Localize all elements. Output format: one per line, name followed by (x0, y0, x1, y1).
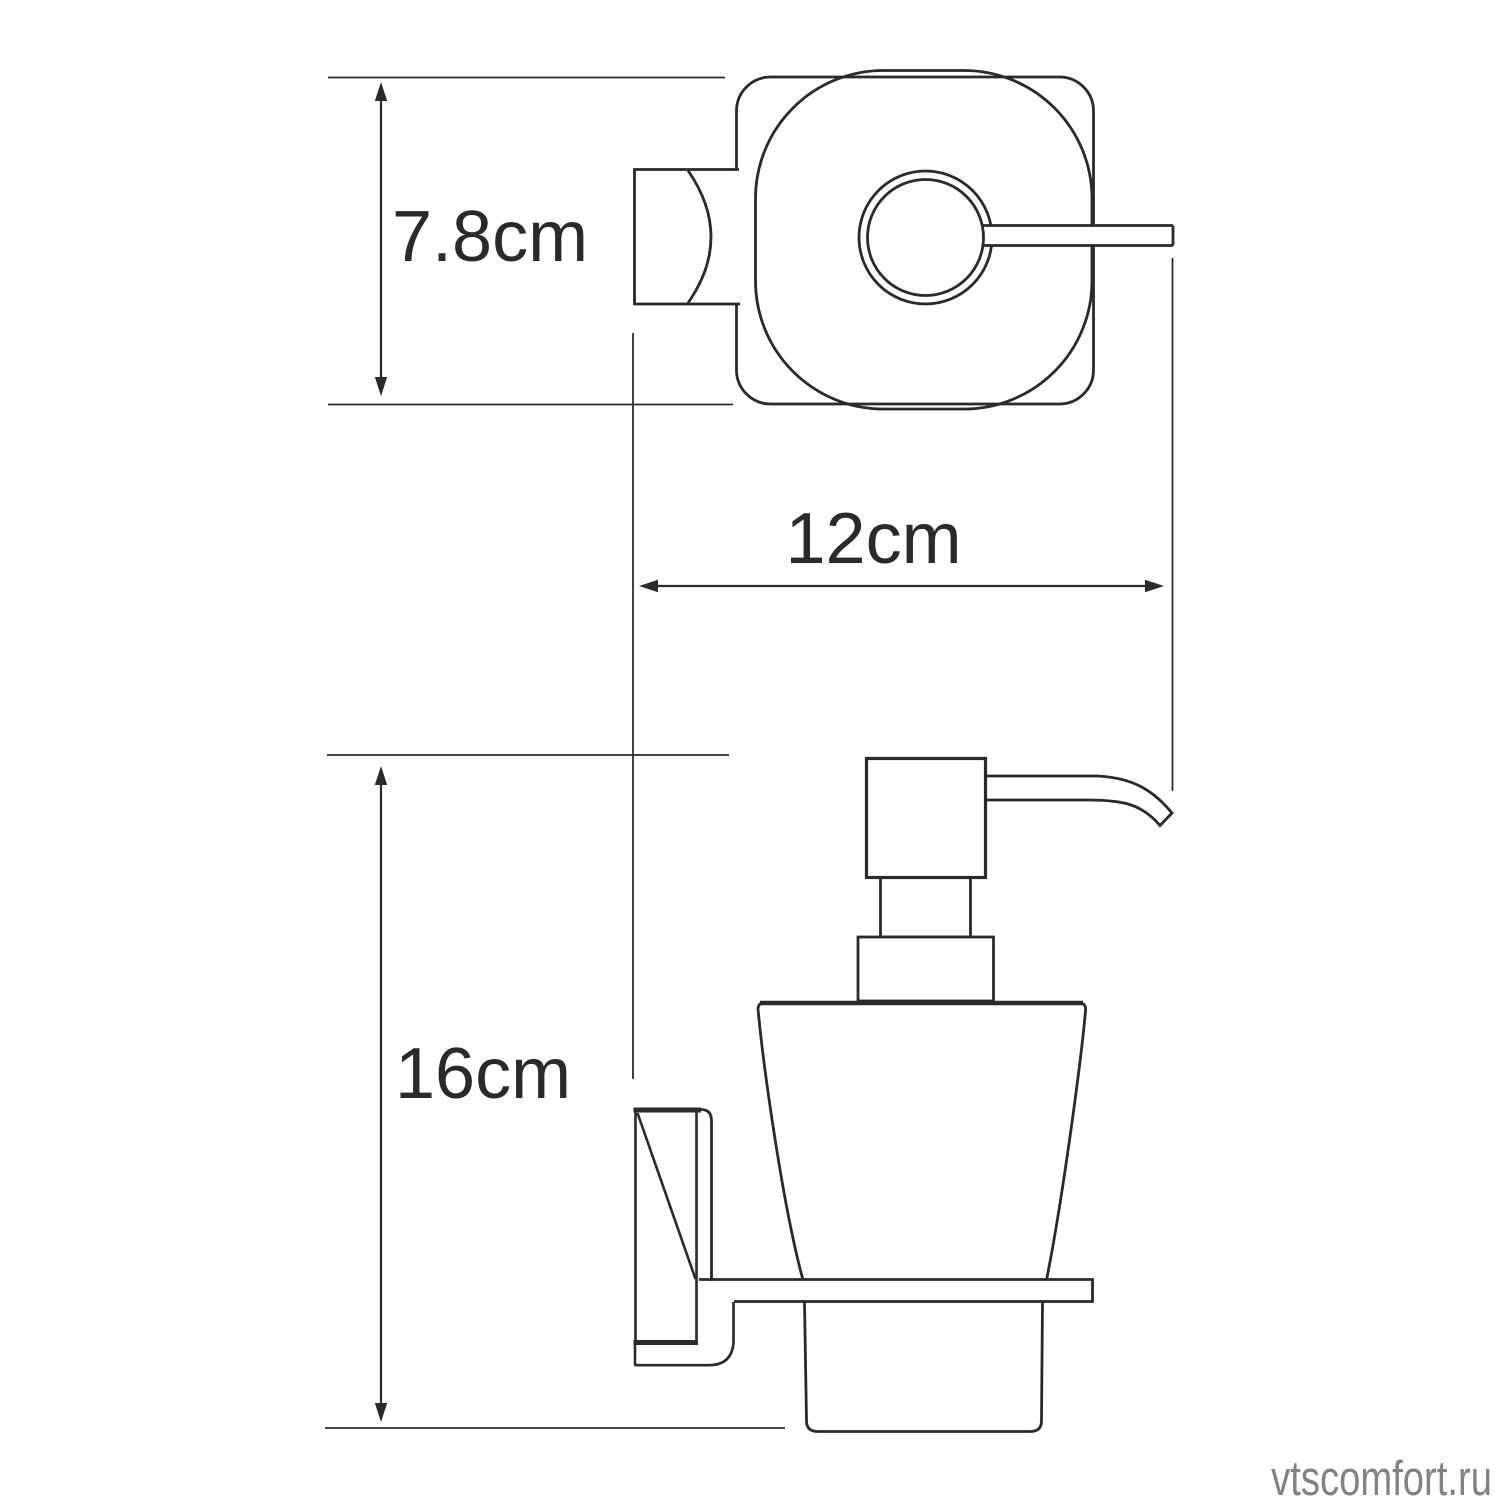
svg-text:7.8cm: 7.8cm (392, 197, 588, 277)
svg-text:vtscomfort.ru: vtscomfort.ru (1271, 1452, 1492, 1504)
svg-text:12cm: 12cm (786, 499, 962, 579)
svg-text:16cm: 16cm (395, 1034, 571, 1114)
